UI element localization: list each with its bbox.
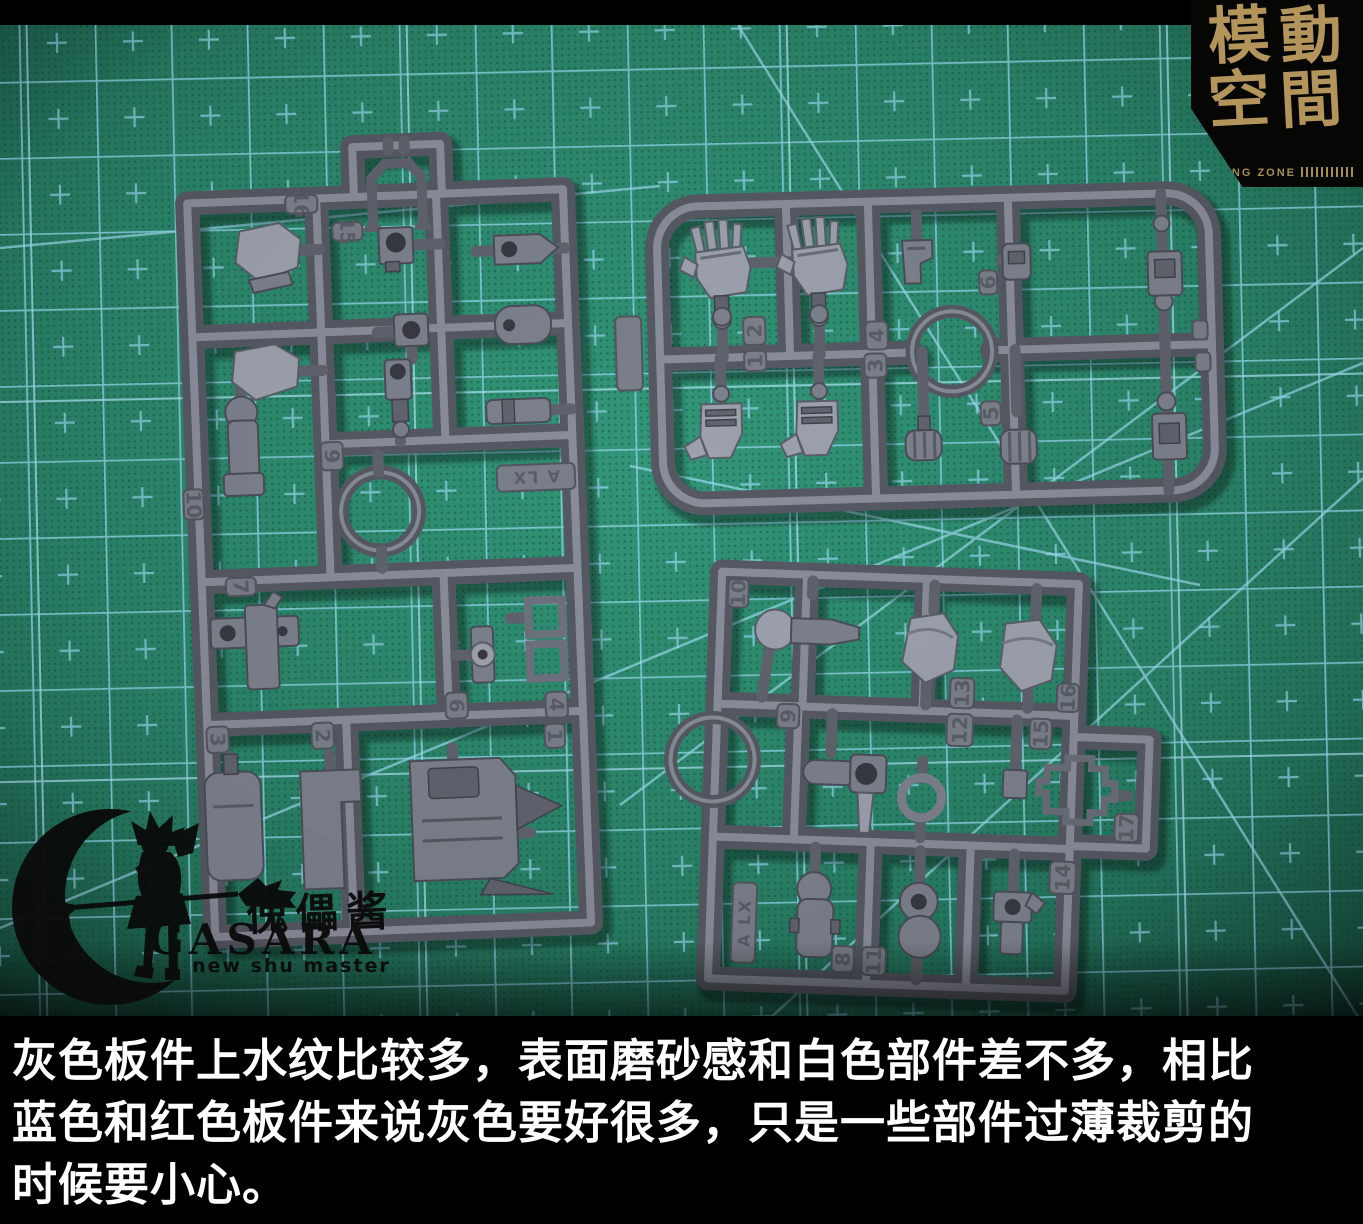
barcode-marks [1301, 167, 1353, 177]
caption-line: 蓝色和红色板件来说灰色要好很多，只是一些部件过薄裁剪的 [12, 1092, 1351, 1154]
brand-logo-calligraphy: 模 動 空 間 [1203, 4, 1353, 132]
caption-line: 时候要小心。 [12, 1154, 1351, 1216]
watermark-subtitle: new shu master [192, 955, 391, 977]
logo-char: 間 [1278, 66, 1343, 133]
logo-char: 空 [1206, 66, 1271, 133]
caption-band: 灰色板件上水纹比较多，表面磨砂感和白色部件差不多，相比 蓝色和红色板件来说灰色要… [0, 1016, 1363, 1224]
logo-char: 模 [1206, 2, 1271, 69]
caption-line: 灰色板件上水纹比较多，表面磨砂感和白色部件差不多，相比 [12, 1030, 1351, 1092]
logo-char: 動 [1278, 2, 1343, 69]
photo-vignette [0, 22, 1363, 1018]
photo-of-model-kit-runners: 16 15 10 9 7 3 2 6 4 1 A LX [0, 0, 1363, 1224]
